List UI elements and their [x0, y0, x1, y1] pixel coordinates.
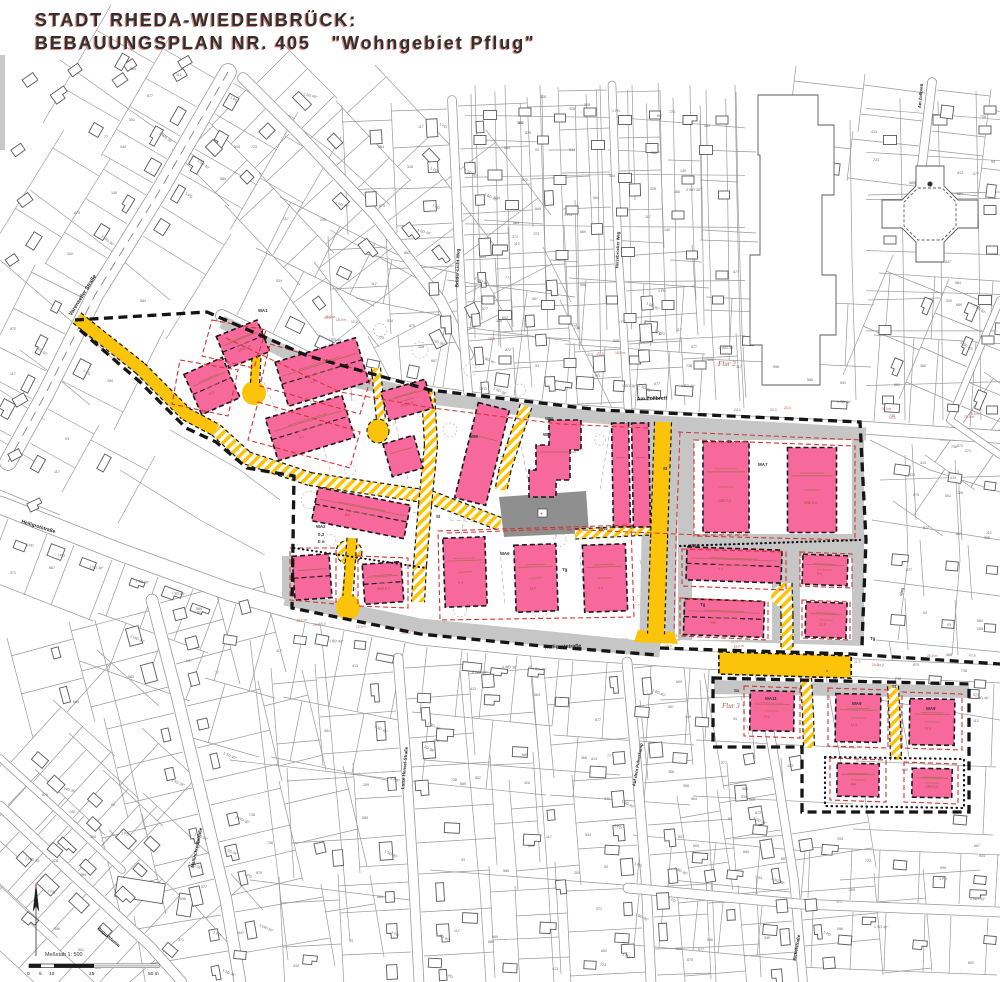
svg-text:872: 872: [433, 739, 439, 743]
svg-text:0,3: 0,3: [318, 532, 325, 537]
svg-text:117: 117: [546, 835, 552, 839]
svg-text:Tg: Tg: [700, 602, 706, 607]
svg-text:413: 413: [470, 687, 476, 691]
svg-text:Am Zollbrett: Am Zollbrett: [637, 395, 668, 402]
svg-text:1 SD 40°: 1 SD 40°: [874, 925, 889, 929]
svg-text:669: 669: [676, 680, 682, 684]
svg-text:St: St: [727, 439, 732, 444]
svg-text:669: 669: [894, 383, 900, 387]
svg-text:WA9: WA9: [926, 706, 936, 711]
svg-text:596: 596: [54, 927, 60, 931]
svg-text:140: 140: [111, 191, 117, 195]
svg-text:413: 413: [352, 664, 358, 668]
svg-text:852: 852: [502, 316, 508, 320]
svg-text:875: 875: [409, 324, 415, 328]
svg-text:551: 551: [129, 118, 135, 122]
svg-text:413: 413: [571, 323, 577, 327]
svg-text:2 WD 30°: 2 WD 30°: [686, 188, 702, 192]
svg-text:689: 689: [956, 303, 962, 307]
svg-text:585: 585: [909, 181, 915, 185]
svg-text:1 BD 40°: 1 BD 40°: [329, 639, 344, 644]
svg-text:534: 534: [609, 174, 615, 178]
svg-text:II o: II o: [718, 567, 723, 571]
svg-text:723: 723: [669, 110, 675, 114]
svg-text:328: 328: [418, 345, 424, 349]
svg-text:93: 93: [733, 717, 737, 721]
svg-text:75,0 m: 75,0 m: [881, 407, 892, 411]
svg-text:366: 366: [920, 364, 926, 368]
svg-text:577: 577: [201, 885, 207, 889]
svg-text:140: 140: [685, 715, 691, 719]
svg-text:II o: II o: [598, 586, 603, 590]
svg-text:669: 669: [504, 146, 510, 150]
svg-text:585: 585: [362, 816, 368, 820]
svg-text:723: 723: [378, 336, 384, 340]
svg-text:577: 577: [698, 948, 704, 952]
svg-text:585: 585: [220, 177, 226, 181]
svg-text:117: 117: [283, 217, 289, 221]
svg-text:St: St: [892, 684, 897, 689]
svg-text:872: 872: [522, 178, 528, 182]
svg-text:WA8: WA8: [690, 543, 700, 548]
svg-text:WA: WA: [710, 621, 716, 625]
svg-text:209: 209: [528, 844, 534, 848]
svg-text:366: 366: [581, 756, 587, 760]
svg-text:596: 596: [773, 365, 779, 369]
svg-text:584: 584: [130, 67, 136, 71]
svg-text:Heiligrotstraße: Heiligrotstraße: [545, 643, 582, 650]
svg-text:413: 413: [957, 171, 963, 175]
svg-text:93: 93: [923, 611, 927, 615]
svg-text:328: 328: [984, 536, 990, 540]
svg-text:WA9: WA9: [852, 701, 862, 706]
svg-text:875: 875: [525, 131, 531, 135]
svg-text:St: St: [436, 514, 441, 519]
svg-text:669: 669: [580, 230, 586, 234]
svg-text:875: 875: [913, 493, 919, 497]
svg-text:328: 328: [524, 781, 530, 785]
svg-text:584: 584: [955, 281, 961, 285]
svg-text:371: 371: [10, 571, 16, 575]
svg-text:21,5: 21,5: [854, 660, 861, 664]
svg-text:15,0 m: 15,0 m: [615, 351, 626, 355]
svg-text:12,5: 12,5: [529, 586, 536, 590]
svg-text:584: 584: [196, 607, 202, 611]
svg-text:596: 596: [180, 897, 186, 901]
svg-text:534: 534: [979, 854, 985, 858]
svg-text:577: 577: [595, 718, 601, 722]
svg-text:340: 340: [67, 252, 73, 256]
svg-text:15,0: 15,0: [319, 622, 326, 626]
svg-text:117: 117: [276, 649, 282, 653]
svg-text:669: 669: [676, 947, 682, 951]
svg-text:738: 738: [895, 677, 901, 681]
svg-text:534: 534: [585, 833, 591, 837]
svg-text:667: 667: [532, 297, 538, 301]
svg-text:577: 577: [691, 345, 697, 349]
svg-text:140: 140: [680, 169, 686, 173]
svg-text:2 WD 30°: 2 WD 30°: [719, 346, 735, 350]
svg-text:12,5: 12,5: [819, 623, 826, 627]
svg-text:WA7: WA7: [758, 462, 768, 467]
svg-text:585: 585: [503, 869, 509, 873]
svg-text:209: 209: [574, 871, 580, 875]
svg-text:534: 534: [387, 319, 393, 323]
svg-text:667: 667: [657, 114, 663, 118]
svg-text:577: 577: [973, 172, 979, 176]
svg-text:II o: II o: [817, 572, 822, 576]
svg-text:596: 596: [707, 938, 713, 942]
svg-text:II o: II o: [458, 581, 463, 585]
svg-text:340: 340: [604, 797, 610, 801]
svg-text:328: 328: [52, 859, 58, 863]
svg-text:584: 584: [513, 221, 519, 225]
svg-text:872: 872: [755, 811, 761, 815]
svg-text:WA2: WA2: [316, 524, 326, 529]
svg-text:577: 577: [482, 307, 488, 311]
svg-text:577: 577: [906, 568, 912, 572]
svg-text:551: 551: [840, 381, 846, 385]
svg-text:GRZ 0,4: GRZ 0,4: [925, 785, 938, 789]
svg-text:12,5: 12,5: [850, 723, 857, 727]
svg-text:209: 209: [837, 837, 843, 841]
svg-text:117: 117: [54, 470, 60, 474]
svg-text:23,0: 23,0: [597, 352, 604, 356]
svg-text:1 FD: 1 FD: [618, 320, 626, 324]
svg-text:584: 584: [378, 145, 384, 149]
svg-text:117: 117: [736, 365, 742, 369]
svg-text:25,0 m: 25,0 m: [356, 624, 367, 629]
svg-text:667: 667: [781, 857, 787, 861]
svg-text:1 PD: 1 PD: [658, 289, 666, 293]
svg-text:21,5: 21,5: [969, 653, 976, 658]
svg-text:738: 738: [249, 813, 255, 817]
svg-text:328: 328: [569, 107, 575, 111]
svg-text:534: 534: [494, 196, 500, 200]
svg-text:10: 10: [49, 971, 55, 977]
svg-text:93: 93: [461, 858, 465, 862]
svg-text:366: 366: [651, 151, 657, 155]
svg-text:93: 93: [991, 160, 995, 164]
svg-text:551: 551: [324, 729, 330, 733]
svg-text:584: 584: [140, 299, 146, 303]
svg-text:209: 209: [363, 783, 369, 787]
svg-text:723: 723: [251, 145, 257, 149]
svg-text:117: 117: [10, 372, 16, 376]
svg-text:1 BD 40°: 1 BD 40°: [532, 667, 547, 672]
svg-text:847: 847: [186, 659, 192, 663]
svg-text:584: 584: [691, 797, 697, 801]
svg-text:1 PD: 1 PD: [592, 374, 600, 378]
svg-text:117: 117: [454, 929, 460, 933]
svg-text:366: 366: [946, 653, 952, 657]
svg-text:WA5: WA5: [598, 526, 608, 531]
svg-text:23,0: 23,0: [734, 408, 741, 412]
svg-text:WA1: WA1: [258, 308, 268, 313]
svg-text:112: 112: [986, 531, 992, 535]
svg-text:738: 738: [686, 364, 692, 368]
svg-text:117: 117: [645, 215, 651, 219]
svg-text:689: 689: [743, 850, 749, 854]
svg-text:875: 875: [913, 663, 919, 667]
svg-text:577: 577: [721, 761, 727, 765]
svg-text:585: 585: [707, 358, 713, 362]
svg-text:340: 340: [107, 379, 113, 383]
svg-text:St: St: [663, 466, 668, 471]
svg-text:209: 209: [977, 627, 983, 631]
svg-text:GRZ 0,4: GRZ 0,4: [718, 499, 731, 503]
svg-text:596: 596: [580, 283, 586, 287]
svg-text:875: 875: [74, 211, 80, 215]
svg-text:723: 723: [533, 232, 539, 236]
svg-text:112: 112: [973, 719, 979, 723]
svg-text:584: 584: [377, 895, 383, 899]
svg-text:585: 585: [613, 339, 619, 343]
svg-text:75,0 m: 75,0 m: [325, 315, 336, 319]
svg-text:209: 209: [849, 888, 855, 892]
svg-text:872: 872: [505, 348, 511, 352]
svg-text:340: 340: [946, 299, 952, 303]
svg-text:723: 723: [873, 158, 879, 162]
svg-text:93: 93: [604, 865, 608, 869]
svg-text:II o: II o: [765, 715, 770, 719]
svg-text:875: 875: [256, 871, 262, 875]
svg-text:371: 371: [965, 449, 971, 453]
svg-text:GRZ 0,4: GRZ 0,4: [804, 501, 817, 505]
svg-text:577: 577: [733, 270, 739, 274]
svg-text:689: 689: [80, 873, 86, 877]
svg-text:1 SD 38°: 1 SD 38°: [622, 384, 637, 388]
svg-text:872: 872: [923, 526, 929, 530]
svg-text:366: 366: [90, 835, 96, 839]
svg-text:WM: WM: [543, 432, 551, 437]
svg-text:413: 413: [552, 967, 558, 971]
svg-text:328: 328: [650, 187, 656, 191]
svg-text:77: 77: [215, 671, 219, 675]
svg-text:371: 371: [178, 938, 184, 942]
svg-text:23,0: 23,0: [872, 663, 879, 667]
svg-text:669: 669: [73, 700, 79, 704]
svg-text:112: 112: [176, 73, 182, 77]
svg-text:1 PD: 1 PD: [564, 213, 572, 217]
svg-text:117: 117: [676, 328, 682, 332]
svg-text:1 BD 40°: 1 BD 40°: [681, 384, 696, 388]
svg-text:WA6: WA6: [500, 551, 510, 556]
svg-text:1 PD: 1 PD: [939, 877, 947, 881]
svg-text:738: 738: [951, 445, 957, 449]
svg-text:847: 847: [678, 835, 684, 839]
svg-text:WM: WM: [545, 416, 553, 421]
svg-text:366: 366: [668, 770, 674, 774]
svg-text:77: 77: [505, 276, 509, 280]
svg-text:689: 689: [488, 940, 494, 944]
svg-text:93: 93: [349, 939, 353, 943]
svg-text:5: 5: [39, 971, 42, 977]
svg-text:23,0: 23,0: [784, 406, 791, 410]
svg-text:723: 723: [600, 963, 606, 967]
svg-text:669: 669: [749, 798, 755, 802]
svg-text:371: 371: [596, 907, 602, 911]
svg-text:23,0: 23,0: [770, 408, 777, 412]
svg-text:534: 534: [276, 279, 282, 283]
svg-text:1 BD 40°: 1 BD 40°: [975, 696, 990, 700]
svg-text:534: 534: [234, 145, 240, 149]
svg-text:328: 328: [540, 95, 546, 99]
svg-text:15,0: 15,0: [313, 623, 320, 627]
svg-text:10,0: 10,0: [351, 320, 358, 324]
svg-text:847: 847: [238, 931, 244, 935]
svg-text:585: 585: [807, 378, 813, 382]
svg-text:12,5: 12,5: [924, 727, 931, 731]
svg-text:852: 852: [601, 949, 607, 953]
svg-text:Flur 2: Flur 2: [717, 360, 736, 368]
svg-text:93: 93: [758, 876, 762, 880]
svg-text:112: 112: [514, 242, 520, 246]
svg-text:852: 852: [518, 121, 524, 125]
svg-text:585: 585: [742, 787, 748, 791]
svg-text:25,0 m: 25,0 m: [927, 654, 938, 658]
svg-text:413: 413: [787, 764, 793, 768]
svg-text:93: 93: [65, 437, 69, 441]
svg-text:596: 596: [940, 866, 946, 870]
svg-text:209: 209: [320, 218, 326, 222]
svg-text:328: 328: [584, 103, 590, 107]
svg-text:584: 584: [957, 192, 963, 196]
svg-text:WM: WM: [470, 434, 478, 439]
svg-text:Sx: Sx: [734, 688, 740, 693]
svg-text:413: 413: [909, 473, 915, 477]
svg-text:577: 577: [654, 382, 660, 386]
svg-text:WA11: WA11: [765, 696, 777, 701]
svg-text:2 WD 30°: 2 WD 30°: [472, 670, 488, 675]
svg-text:852: 852: [404, 251, 410, 255]
svg-text:23,0: 23,0: [488, 337, 495, 341]
svg-text:738: 738: [961, 669, 967, 673]
svg-text:738: 738: [980, 115, 986, 119]
svg-text:534: 534: [569, 148, 575, 152]
svg-text:2 WD 30°: 2 WD 30°: [970, 897, 986, 901]
svg-text:596: 596: [837, 927, 843, 931]
svg-text:551: 551: [945, 494, 951, 498]
svg-text:872: 872: [957, 444, 963, 448]
svg-text:75,0 m: 75,0 m: [969, 412, 980, 416]
svg-text:738: 738: [267, 841, 273, 845]
svg-text:689: 689: [460, 782, 466, 786]
svg-text:WA: WA: [851, 782, 857, 786]
svg-text:II o: II o: [318, 539, 325, 544]
svg-text:93: 93: [111, 803, 115, 807]
svg-text:584: 584: [534, 693, 540, 697]
svg-text:667: 667: [974, 844, 980, 848]
svg-text:534: 534: [293, 964, 299, 968]
svg-text:689: 689: [522, 753, 528, 757]
svg-text:15,0 m: 15,0 m: [336, 318, 347, 322]
svg-text:413: 413: [587, 353, 593, 357]
svg-text:371: 371: [836, 900, 842, 904]
svg-text:1 PD: 1 PD: [612, 109, 620, 113]
svg-text:723: 723: [865, 859, 871, 863]
svg-text:140: 140: [664, 228, 670, 232]
svg-text:667: 667: [668, 705, 674, 709]
svg-text:585: 585: [704, 124, 710, 128]
svg-text:413: 413: [591, 757, 597, 761]
svg-text:584: 584: [977, 619, 983, 623]
svg-text:77: 77: [607, 754, 611, 758]
svg-text:112: 112: [371, 282, 377, 286]
svg-text:1 FD: 1 FD: [479, 387, 487, 391]
svg-text:669: 669: [492, 935, 498, 939]
svg-text:413: 413: [871, 130, 877, 134]
svg-text:93: 93: [535, 364, 539, 368]
svg-text:669: 669: [902, 768, 908, 772]
svg-text:667: 667: [956, 532, 962, 536]
svg-text:596: 596: [683, 784, 689, 788]
svg-text:875: 875: [42, 793, 48, 797]
svg-text:669: 669: [693, 844, 699, 848]
svg-text:2 WD 30°: 2 WD 30°: [502, 665, 518, 670]
svg-text:1 SD 38°: 1 SD 38°: [837, 400, 852, 404]
svg-text:413: 413: [950, 476, 956, 480]
svg-text:872: 872: [10, 327, 16, 331]
svg-text:738: 738: [451, 778, 457, 782]
svg-text:534: 534: [741, 795, 747, 799]
svg-text:10,0: 10,0: [889, 416, 896, 420]
svg-text:328: 328: [957, 491, 963, 495]
svg-text:50 m: 50 m: [148, 971, 159, 977]
svg-text:667: 667: [431, 359, 437, 363]
svg-text:1 FD: 1 FD: [26, 543, 35, 548]
svg-text:852: 852: [968, 961, 974, 965]
svg-text:340: 340: [120, 145, 126, 149]
svg-text:25: 25: [89, 971, 95, 977]
svg-text:140: 140: [69, 810, 75, 814]
svg-text:Tg: Tg: [562, 567, 568, 572]
svg-text:340: 340: [764, 936, 770, 940]
svg-text:371: 371: [512, 235, 518, 239]
svg-text:667: 667: [49, 566, 55, 570]
svg-text:577: 577: [147, 94, 153, 98]
svg-text:534: 534: [480, 255, 486, 259]
svg-text:Meßstab 1: 500: Meßstab 1: 500: [45, 952, 82, 958]
svg-text:117: 117: [418, 125, 424, 129]
svg-text:585: 585: [128, 675, 134, 679]
svg-text:669: 669: [535, 207, 541, 211]
svg-text:847: 847: [945, 260, 951, 264]
svg-text:Tg: Tg: [870, 636, 876, 641]
svg-text:77: 77: [104, 135, 108, 139]
svg-text:93: 93: [728, 817, 732, 821]
svg-text:Flur 3: Flur 3: [721, 702, 740, 710]
svg-text:93: 93: [947, 623, 951, 627]
svg-text:875: 875: [379, 204, 385, 208]
svg-text:+: +: [540, 512, 543, 518]
svg-text:328: 328: [407, 165, 413, 169]
svg-text:852: 852: [475, 776, 481, 780]
svg-text:413: 413: [920, 461, 926, 465]
svg-text:0: 0: [27, 971, 30, 977]
svg-text:93: 93: [535, 148, 539, 152]
svg-text:366: 366: [674, 190, 680, 194]
svg-text:875: 875: [687, 958, 693, 962]
svg-text:584: 584: [593, 196, 599, 200]
